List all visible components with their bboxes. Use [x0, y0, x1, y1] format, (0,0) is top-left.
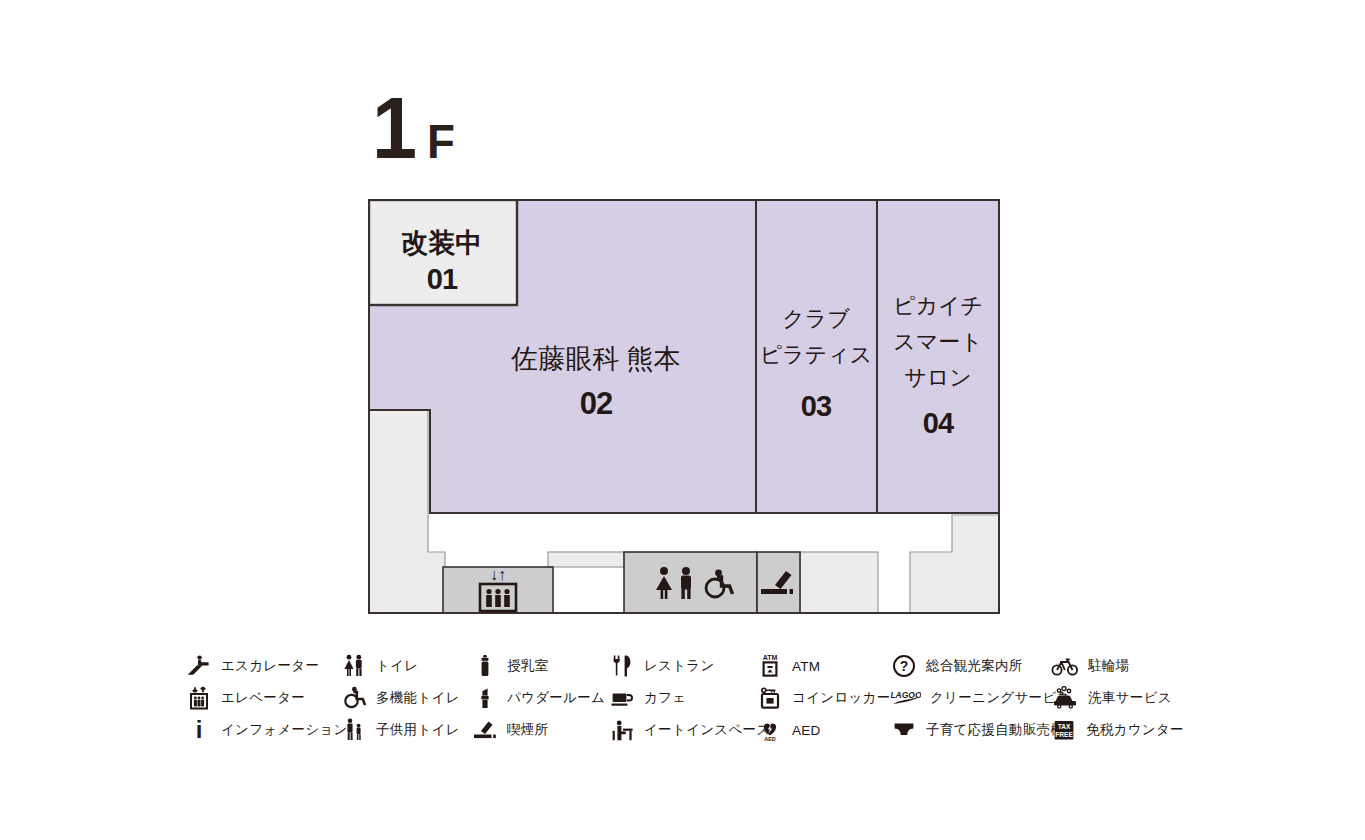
legend: エスカレーター エレベーター i インフォメーション — [0, 650, 1365, 760]
toilet-icon — [341, 653, 367, 679]
legend-item: 洗車サービス — [1051, 682, 1184, 714]
unit-01-status: 改装中 — [402, 228, 483, 258]
restaurant-icon — [609, 653, 635, 679]
tourist-information-icon: ? — [891, 653, 917, 679]
legend-item: 駐輪場 — [1051, 650, 1184, 682]
legend-label: パウダールーム — [507, 689, 605, 707]
accessible-toilet-icon — [341, 685, 367, 711]
coin-locker-icon — [757, 685, 783, 711]
legend-label: エレベーター — [221, 689, 305, 707]
unit-02-number: 02 — [580, 386, 612, 421]
unit-02-name: 佐藤眼科 熊本 — [510, 344, 681, 374]
escalator-icon — [186, 653, 212, 679]
legend-column-7: 駐輪場 洗車サービス TAX — [1051, 650, 1184, 746]
floor-suffix: F — [427, 118, 455, 166]
legend-column-5: ATM ATM コインロッカー — [757, 650, 891, 746]
legend-item: イートインスペース — [609, 714, 770, 746]
legend-item: 授乳室 — [472, 650, 605, 682]
lagoo-glyph: LAGOO — [891, 690, 921, 700]
car-wash-icon — [1051, 685, 1079, 711]
legend-label: クリーニングサービス — [930, 689, 1071, 707]
unit-04-name-line2: スマート — [893, 329, 983, 354]
legend-column-2: トイレ 多機能トイレ 子供用トイレ — [341, 650, 460, 746]
smoking-area-icon — [472, 717, 498, 743]
floor-map-svg: 改装中 01 佐藤眼科 熊本 02 クラブ ピラティス 03 ピカイチ スマート… — [368, 199, 1000, 614]
cafe-icon — [609, 685, 635, 711]
corridor-mid-block — [800, 552, 878, 613]
legend-item: 子育て応援自動販売機 — [891, 714, 1071, 746]
legend-item: 多機能トイレ — [341, 682, 460, 714]
legend-label: 授乳室 — [507, 657, 548, 675]
corridor-right-block — [910, 515, 999, 613]
unit-03-number: 03 — [801, 390, 832, 422]
atm-icon: ATM — [757, 653, 783, 679]
legend-label: 喫煙所 — [507, 721, 548, 739]
legend-item: 子供用トイレ — [341, 714, 460, 746]
legend-column-4: レストラン カフェ イートインス — [609, 650, 770, 746]
atm-glyph: ATM — [763, 654, 778, 661]
legend-item: ATM ATM — [757, 650, 891, 682]
legend-column-3: 授乳室 パウダールーム 喫煙所 — [472, 650, 605, 746]
legend-label: エスカレーター — [221, 657, 319, 675]
aed-icon: AED — [757, 717, 783, 743]
legend-item: トイレ — [341, 650, 460, 682]
floor-number: 1 — [372, 84, 417, 172]
tax-free-counter-icon: TAX FREE — [1051, 717, 1077, 743]
legend-item: i インフォメーション — [186, 714, 348, 746]
unit-04-name-line1: ピカイチ — [893, 293, 983, 318]
legend-label: 子供用トイレ — [376, 721, 460, 739]
legend-label: 免税カウンター — [1086, 721, 1184, 739]
information-glyph: i — [196, 718, 203, 742]
legend-item: カフェ — [609, 682, 770, 714]
powder-room-icon — [472, 685, 498, 711]
unit-04-number: 04 — [923, 407, 954, 439]
kids-toilet-icon — [341, 717, 367, 743]
legend-label: イートインスペース — [644, 721, 770, 739]
legend-label: ATM — [792, 659, 820, 674]
elevator-arrows: ↓↑ — [490, 566, 506, 583]
unit-01-number: 01 — [427, 263, 458, 295]
legend-item: エスカレーター — [186, 650, 348, 682]
legend-item: レストラン — [609, 650, 770, 682]
legend-label: 多機能トイレ — [376, 689, 460, 707]
legend-item: 喫煙所 — [472, 714, 605, 746]
elevator-icon — [186, 685, 212, 711]
question-glyph: ? — [900, 658, 909, 674]
legend-label: カフェ — [644, 689, 686, 707]
unit-04-area[interactable] — [877, 200, 999, 513]
legend-label: 総合観光案内所 — [926, 657, 1023, 675]
legend-column-1: エスカレーター エレベーター i インフォメーション — [186, 650, 348, 746]
legend-item: コインロッカー — [757, 682, 891, 714]
information-icon: i — [186, 717, 212, 743]
legend-item: TAX FREE 免税カウンター — [1051, 714, 1184, 746]
legend-column-6: ? 総合観光案内所 LAGOO クリーニングサービス 子育て応援自動販売機 — [891, 650, 1071, 746]
nursing-room-icon — [472, 653, 498, 679]
legend-label: インフォメーション — [221, 721, 348, 739]
free-glyph: FREE — [1055, 731, 1073, 738]
bicycle-parking-icon — [1051, 653, 1079, 679]
legend-label: コインロッカー — [792, 689, 891, 707]
legend-label: 駐輪場 — [1088, 657, 1129, 675]
floor-map: 改装中 01 佐藤眼科 熊本 02 クラブ ピラティス 03 ピカイチ スマート… — [368, 199, 1000, 614]
unit-03-name-line2: ピラティス — [760, 342, 873, 367]
legend-label: レストラン — [644, 657, 715, 675]
floor-title: 1 F — [372, 84, 456, 172]
legend-label: 子育て応援自動販売機 — [926, 721, 1064, 739]
tax-glyph: TAX — [1058, 723, 1071, 730]
unit-04-name-line3: サロン — [904, 365, 972, 390]
legend-label: 洗車サービス — [1088, 689, 1172, 707]
legend-label: トイレ — [376, 657, 418, 675]
eat-in-space-icon — [609, 717, 635, 743]
aed-glyph: AED — [764, 736, 775, 742]
legend-item: LAGOO クリーニングサービス — [891, 682, 1071, 714]
corridor-ledge — [548, 552, 624, 567]
legend-item: ? 総合観光案内所 — [891, 650, 1071, 682]
legend-item: エレベーター — [186, 682, 348, 714]
legend-item: AED AED — [757, 714, 891, 746]
legend-label: AED — [792, 723, 821, 738]
unit-03-name-line1: クラブ — [782, 306, 850, 331]
cleaning-service-icon: LAGOO — [891, 685, 921, 711]
child-support-vending-icon — [891, 717, 917, 743]
legend-item: パウダールーム — [472, 682, 605, 714]
